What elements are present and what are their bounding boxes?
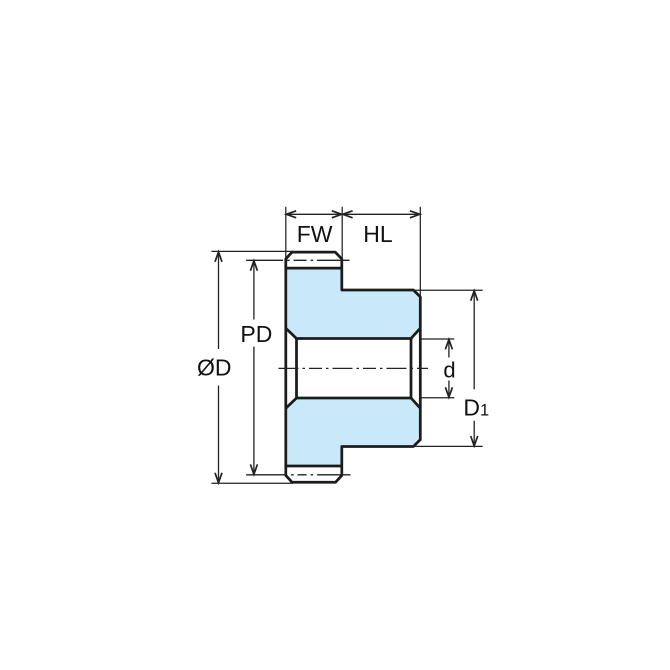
svg-text:HL: HL [363,221,393,247]
svg-text:PD: PD [240,321,272,347]
svg-text:ØD: ØD [197,355,232,381]
svg-text:d: d [443,357,455,382]
svg-text:FW: FW [297,221,333,247]
